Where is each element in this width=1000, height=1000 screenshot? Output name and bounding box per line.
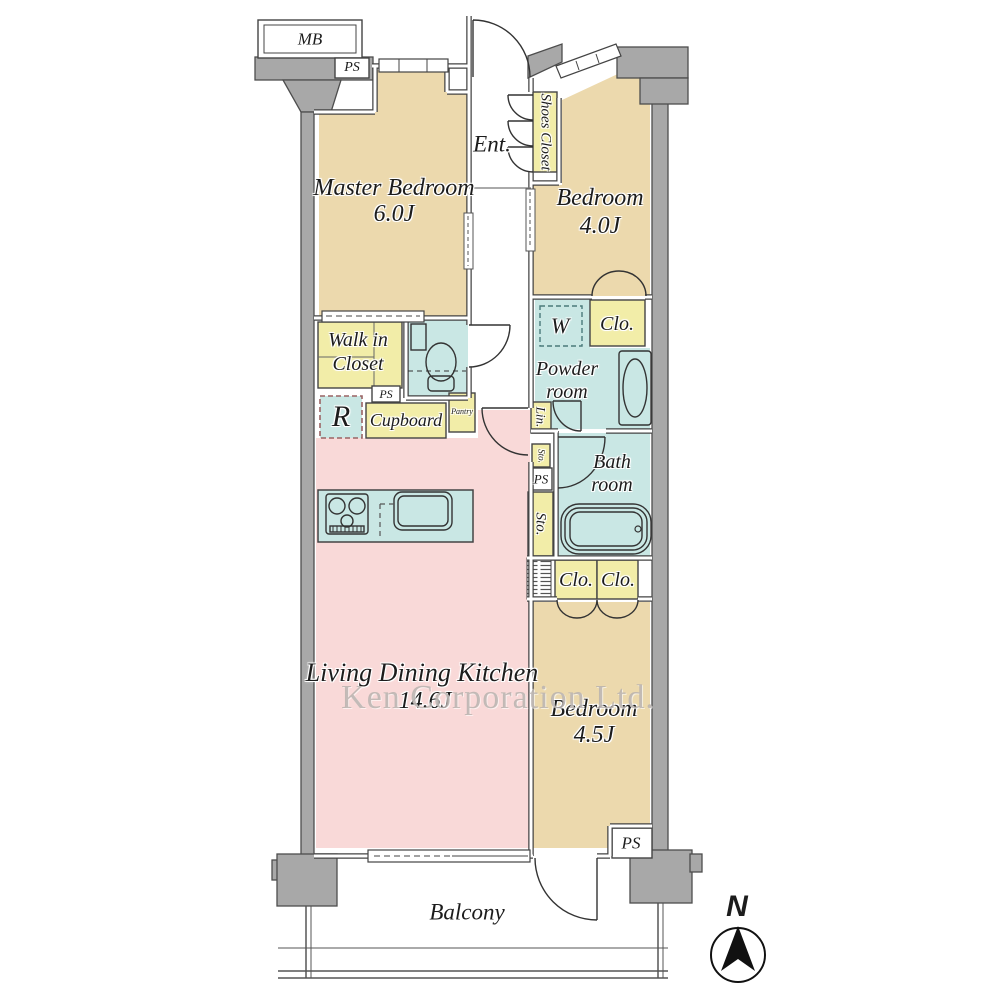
pipe-space-4-label: PS <box>622 835 641 852</box>
balcony-door <box>535 858 597 920</box>
storage-tall-label: Sto. <box>533 513 548 536</box>
bath-room-line2: room <box>591 475 632 495</box>
bottom-left-column <box>277 854 337 906</box>
shoes-closet-door-2 <box>508 121 533 146</box>
cupboard-label: Cupboard <box>370 411 442 429</box>
master-bedroom-size: 6.0J <box>374 202 415 226</box>
entrance-label: Ent. <box>473 133 511 156</box>
left-wall <box>301 112 314 856</box>
ldk-floor <box>316 410 530 848</box>
walk-in-closet-line2: Closet <box>332 354 383 374</box>
refrigerator-label: R <box>332 402 350 432</box>
north-label: N <box>726 892 748 922</box>
front-door <box>473 20 530 77</box>
bedroom2-name: Bedroom <box>556 186 643 210</box>
bath-room-line1: Bath <box>593 452 631 472</box>
walk-in-closet-line1: Walk in <box>328 330 388 350</box>
bedroom2-size: 4.0J <box>580 214 621 238</box>
pipe-space-1-label: PS <box>344 61 360 75</box>
closet-bedroom2-label: Clo. <box>600 314 634 334</box>
meter-box-label: MB <box>298 31 323 48</box>
powder-room-line1: Powder <box>536 359 598 379</box>
entry-diagonal-wall <box>528 44 562 78</box>
shoes-closet-door-1 <box>508 95 533 120</box>
right-wall <box>652 100 668 852</box>
floor-plan-canvas: MB PS Master Bedroom 6.0J Ent. Shoes Clo… <box>0 0 1000 1000</box>
master-bedroom-name: Master Bedroom <box>313 176 474 200</box>
shoes-closet-door-3 <box>508 147 533 172</box>
watermark: Ken Corporation Ltd. <box>341 679 655 717</box>
shoes-closet-label: Shoes Closet <box>538 93 553 170</box>
linen-label: Lin. <box>535 407 548 428</box>
pantry-label: Pantry <box>451 408 473 416</box>
toilet-room-floor <box>406 318 468 396</box>
toilet-door <box>469 325 510 367</box>
washer-label: W <box>551 315 569 337</box>
pipe-space-2-label: PS <box>379 388 392 400</box>
closet-b-label: Clo. <box>601 570 635 590</box>
pipe-space-3-label: PS <box>534 473 548 486</box>
bedroom2-diagonal-window <box>556 44 621 78</box>
storage-small-label: Sto. <box>537 449 546 463</box>
balcony-label: Balcony <box>429 901 504 924</box>
master-top-window <box>379 59 448 72</box>
north-compass-icon <box>711 926 765 982</box>
closet-a-label: Clo. <box>559 570 593 590</box>
bedroom3-size: 4.5J <box>574 723 615 747</box>
powder-room-line2: room <box>546 382 587 402</box>
